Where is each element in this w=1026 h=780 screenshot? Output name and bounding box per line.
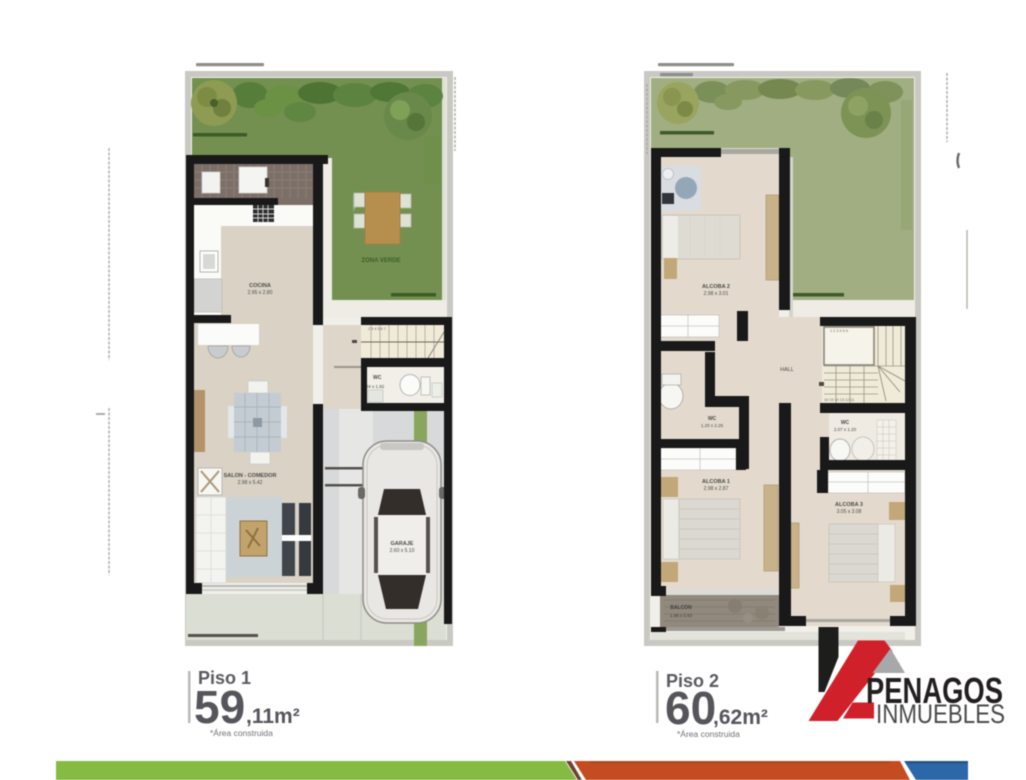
svg-text:1.20 x 2.26: 1.20 x 2.26 xyxy=(701,423,724,428)
svg-text:2 3 4 5 6 7: 2 3 4 5 6 7 xyxy=(368,327,386,331)
svg-text:SALON - COMEDOR: SALON - COMEDOR xyxy=(224,473,277,479)
svg-text:1 2 3 4 5 6: 1 2 3 4 5 6 xyxy=(830,329,848,333)
svg-text:*Área construida: *Área construida xyxy=(677,729,740,739)
svg-text:WC: WC xyxy=(841,420,850,426)
svg-text:WC: WC xyxy=(708,416,717,422)
svg-text:BALCON: BALCON xyxy=(670,605,692,611)
svg-text:1.98 x 0.93: 1.98 x 0.93 xyxy=(670,613,693,618)
svg-text:59: 59 xyxy=(194,681,245,733)
svg-text:*Área construida: *Área construida xyxy=(210,728,273,738)
svg-text:16 15 14 13 12 11: 16 15 14 13 12 11 xyxy=(824,398,854,402)
svg-text:ALCOBA 1: ALCOBA 1 xyxy=(702,479,730,485)
svg-text:3.05 x 3.08: 3.05 x 3.08 xyxy=(837,509,862,515)
svg-text:2.07 x 1.20: 2.07 x 1.20 xyxy=(834,427,857,432)
svg-text:INMUEBLES: INMUEBLES xyxy=(876,699,1005,729)
svg-text:2.98 x 3.01: 2.98 x 3.01 xyxy=(704,291,729,297)
svg-text:,11m²: ,11m² xyxy=(246,705,300,728)
svg-text:60: 60 xyxy=(665,682,716,734)
svg-text:ZONA VERDE: ZONA VERDE xyxy=(361,258,400,264)
svg-text:,62m²: ,62m² xyxy=(713,706,768,729)
svg-text:COCINA: COCINA xyxy=(249,283,271,289)
svg-text:ALCOBA 3: ALCOBA 3 xyxy=(835,502,863,508)
svg-text:2.98 x 5.42: 2.98 x 5.42 xyxy=(238,480,263,486)
svg-text:2.98 x 2.87: 2.98 x 2.87 xyxy=(704,486,729,492)
svg-text:ALCOBA 2: ALCOBA 2 xyxy=(702,284,730,290)
svg-text:2.60 x 5.10: 2.60 x 5.10 xyxy=(390,548,415,554)
svg-text:WC: WC xyxy=(373,375,382,381)
svg-text:2.95 x 2.80: 2.95 x 2.80 xyxy=(248,290,273,296)
svg-text:GARAJE: GARAJE xyxy=(391,541,414,547)
svg-text:HALL: HALL xyxy=(780,367,794,373)
